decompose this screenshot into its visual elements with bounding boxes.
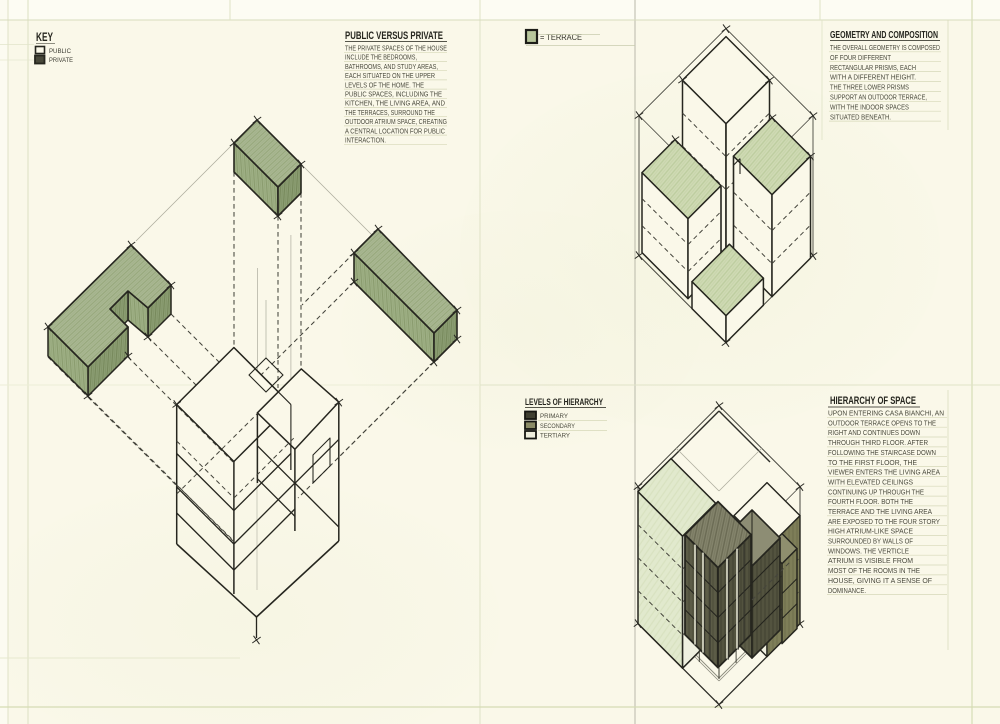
svg-text:THROUGH THIRD FLOOR. AFTER: THROUGH THIRD FLOOR. AFTER [828,438,928,447]
svg-text:ARE EXPOSED TO THE FOUR STORY: ARE EXPOSED TO THE FOUR STORY [828,517,940,526]
svg-text:TERRACE AND THE LIVING AREA: TERRACE AND THE LIVING AREA [828,507,932,516]
svg-text:TERTIARY: TERTIARY [540,433,571,440]
svg-text:INCLUDE THE BEDROOMS,: INCLUDE THE BEDROOMS, [345,53,417,62]
svg-text:KITCHEN, THE LIVING AREA, AND: KITCHEN, THE LIVING AREA, AND [345,99,445,108]
svg-text:PRIVATE: PRIVATE [49,57,74,64]
svg-text:CONTINUING UP THROUGH THE: CONTINUING UP THROUGH THE [828,487,924,496]
svg-text:WITH A DIFFERENT HEIGHT.: WITH A DIFFERENT HEIGHT. [830,73,916,82]
svg-text:LEVELS OF HIERARCHY: LEVELS OF HIERARCHY [525,397,603,408]
svg-text:THE THREE LOWER PRISMS: THE THREE LOWER PRISMS [830,83,909,92]
svg-text:PRIMARY: PRIMARY [540,413,569,420]
svg-text:SURROUNDED BY WALLS OF: SURROUNDED BY WALLS OF [828,537,913,546]
svg-text:RIGHT AND CONTINUES DOWN: RIGHT AND CONTINUES DOWN [828,428,920,437]
svg-text:EACH SITUATED ON THE UPPER: EACH SITUATED ON THE UPPER [345,71,435,80]
svg-text:SUPPORT AN OUTDOOR TERRACE,: SUPPORT AN OUTDOOR TERRACE, [830,93,927,102]
svg-text:TO THE FIRST FLOOR, THE: TO THE FIRST FLOOR, THE [828,458,917,467]
svg-text:FOURTH FLOOR. BOTH THE: FOURTH FLOOR. BOTH THE [828,497,913,506]
svg-text:WITH ELEVATED CEILINGS: WITH ELEVATED CEILINGS [828,477,913,486]
svg-text:INTERACTION.: INTERACTION. [345,136,386,145]
svg-text:THE PRIVATE SPACES OF THE HOUS: THE PRIVATE SPACES OF THE HOUSE [345,44,447,53]
svg-text:HOUSE, GIVING IT A SENSE OF: HOUSE, GIVING IT A SENSE OF [828,576,932,585]
svg-text:LEVELS OF THE HOME. THE: LEVELS OF THE HOME. THE [345,80,424,89]
svg-text:SITUATED BENEATH.: SITUATED BENEATH. [830,112,891,121]
svg-text:OUTDOOR ATRIUM SPACE, CREATING: OUTDOOR ATRIUM SPACE, CREATING [345,117,447,126]
svg-text:VIEWER ENTERS THE LIVING AREA: VIEWER ENTERS THE LIVING AREA [828,468,940,477]
svg-text:BATHROOMS, AND STUDY AREAS,: BATHROOMS, AND STUDY AREAS, [345,62,438,71]
svg-text:SECONDARY: SECONDARY [540,423,576,430]
svg-text:WITH THE INDOOR SPACES: WITH THE INDOOR SPACES [830,102,909,111]
svg-text:GEOMETRY AND COMPOSITION: GEOMETRY AND COMPOSITION [830,29,938,41]
svg-text:PUBLIC SPACES, INCLUDING THE: PUBLIC SPACES, INCLUDING THE [345,90,442,99]
svg-text:MOST OF THE ROOMS IN THE: MOST OF THE ROOMS IN THE [828,566,920,575]
svg-text:THE OVERALL GEOMETRY IS COMPOS: THE OVERALL GEOMETRY IS COMPOSED [830,43,940,52]
svg-text:= TERRACE: = TERRACE [540,32,582,42]
svg-text:KEY: KEY [36,32,53,44]
svg-text:A CENTRAL LOCATION FOR PUBLIC: A CENTRAL LOCATION FOR PUBLIC [345,126,445,135]
svg-text:PUBLIC: PUBLIC [49,48,71,55]
svg-text:HIGH ATRIUM-LIKE SPACE: HIGH ATRIUM-LIKE SPACE [828,527,913,536]
svg-text:FOLLOWING THE STAIRCASE DOWN: FOLLOWING THE STAIRCASE DOWN [828,448,936,457]
svg-text:WINDOWS. THE VERTICLE: WINDOWS. THE VERTICLE [828,546,909,555]
svg-text:HIERARCHY OF SPACE: HIERARCHY OF SPACE [830,395,916,407]
svg-text:OUTDOOR TERRACE OPENS TO THE: OUTDOOR TERRACE OPENS TO THE [828,418,936,427]
svg-text:ATRIUM IS VISIBLE FROM: ATRIUM IS VISIBLE FROM [828,556,913,565]
svg-text:OF FOUR DIFFERENT: OF FOUR DIFFERENT [830,53,891,62]
svg-text:UPON ENTERING CASA BIANCHI, AN: UPON ENTERING CASA BIANCHI, AN [828,409,944,418]
svg-text:RECTANGULAR PRISMS, EACH: RECTANGULAR PRISMS, EACH [830,63,916,72]
svg-text:DOMINANCE.: DOMINANCE. [828,586,866,595]
svg-text:THE TERRACES, SURROUND THE: THE TERRACES, SURROUND THE [345,108,435,117]
svg-text:PUBLIC VERSUS PRIVATE: PUBLIC VERSUS PRIVATE [345,30,443,42]
